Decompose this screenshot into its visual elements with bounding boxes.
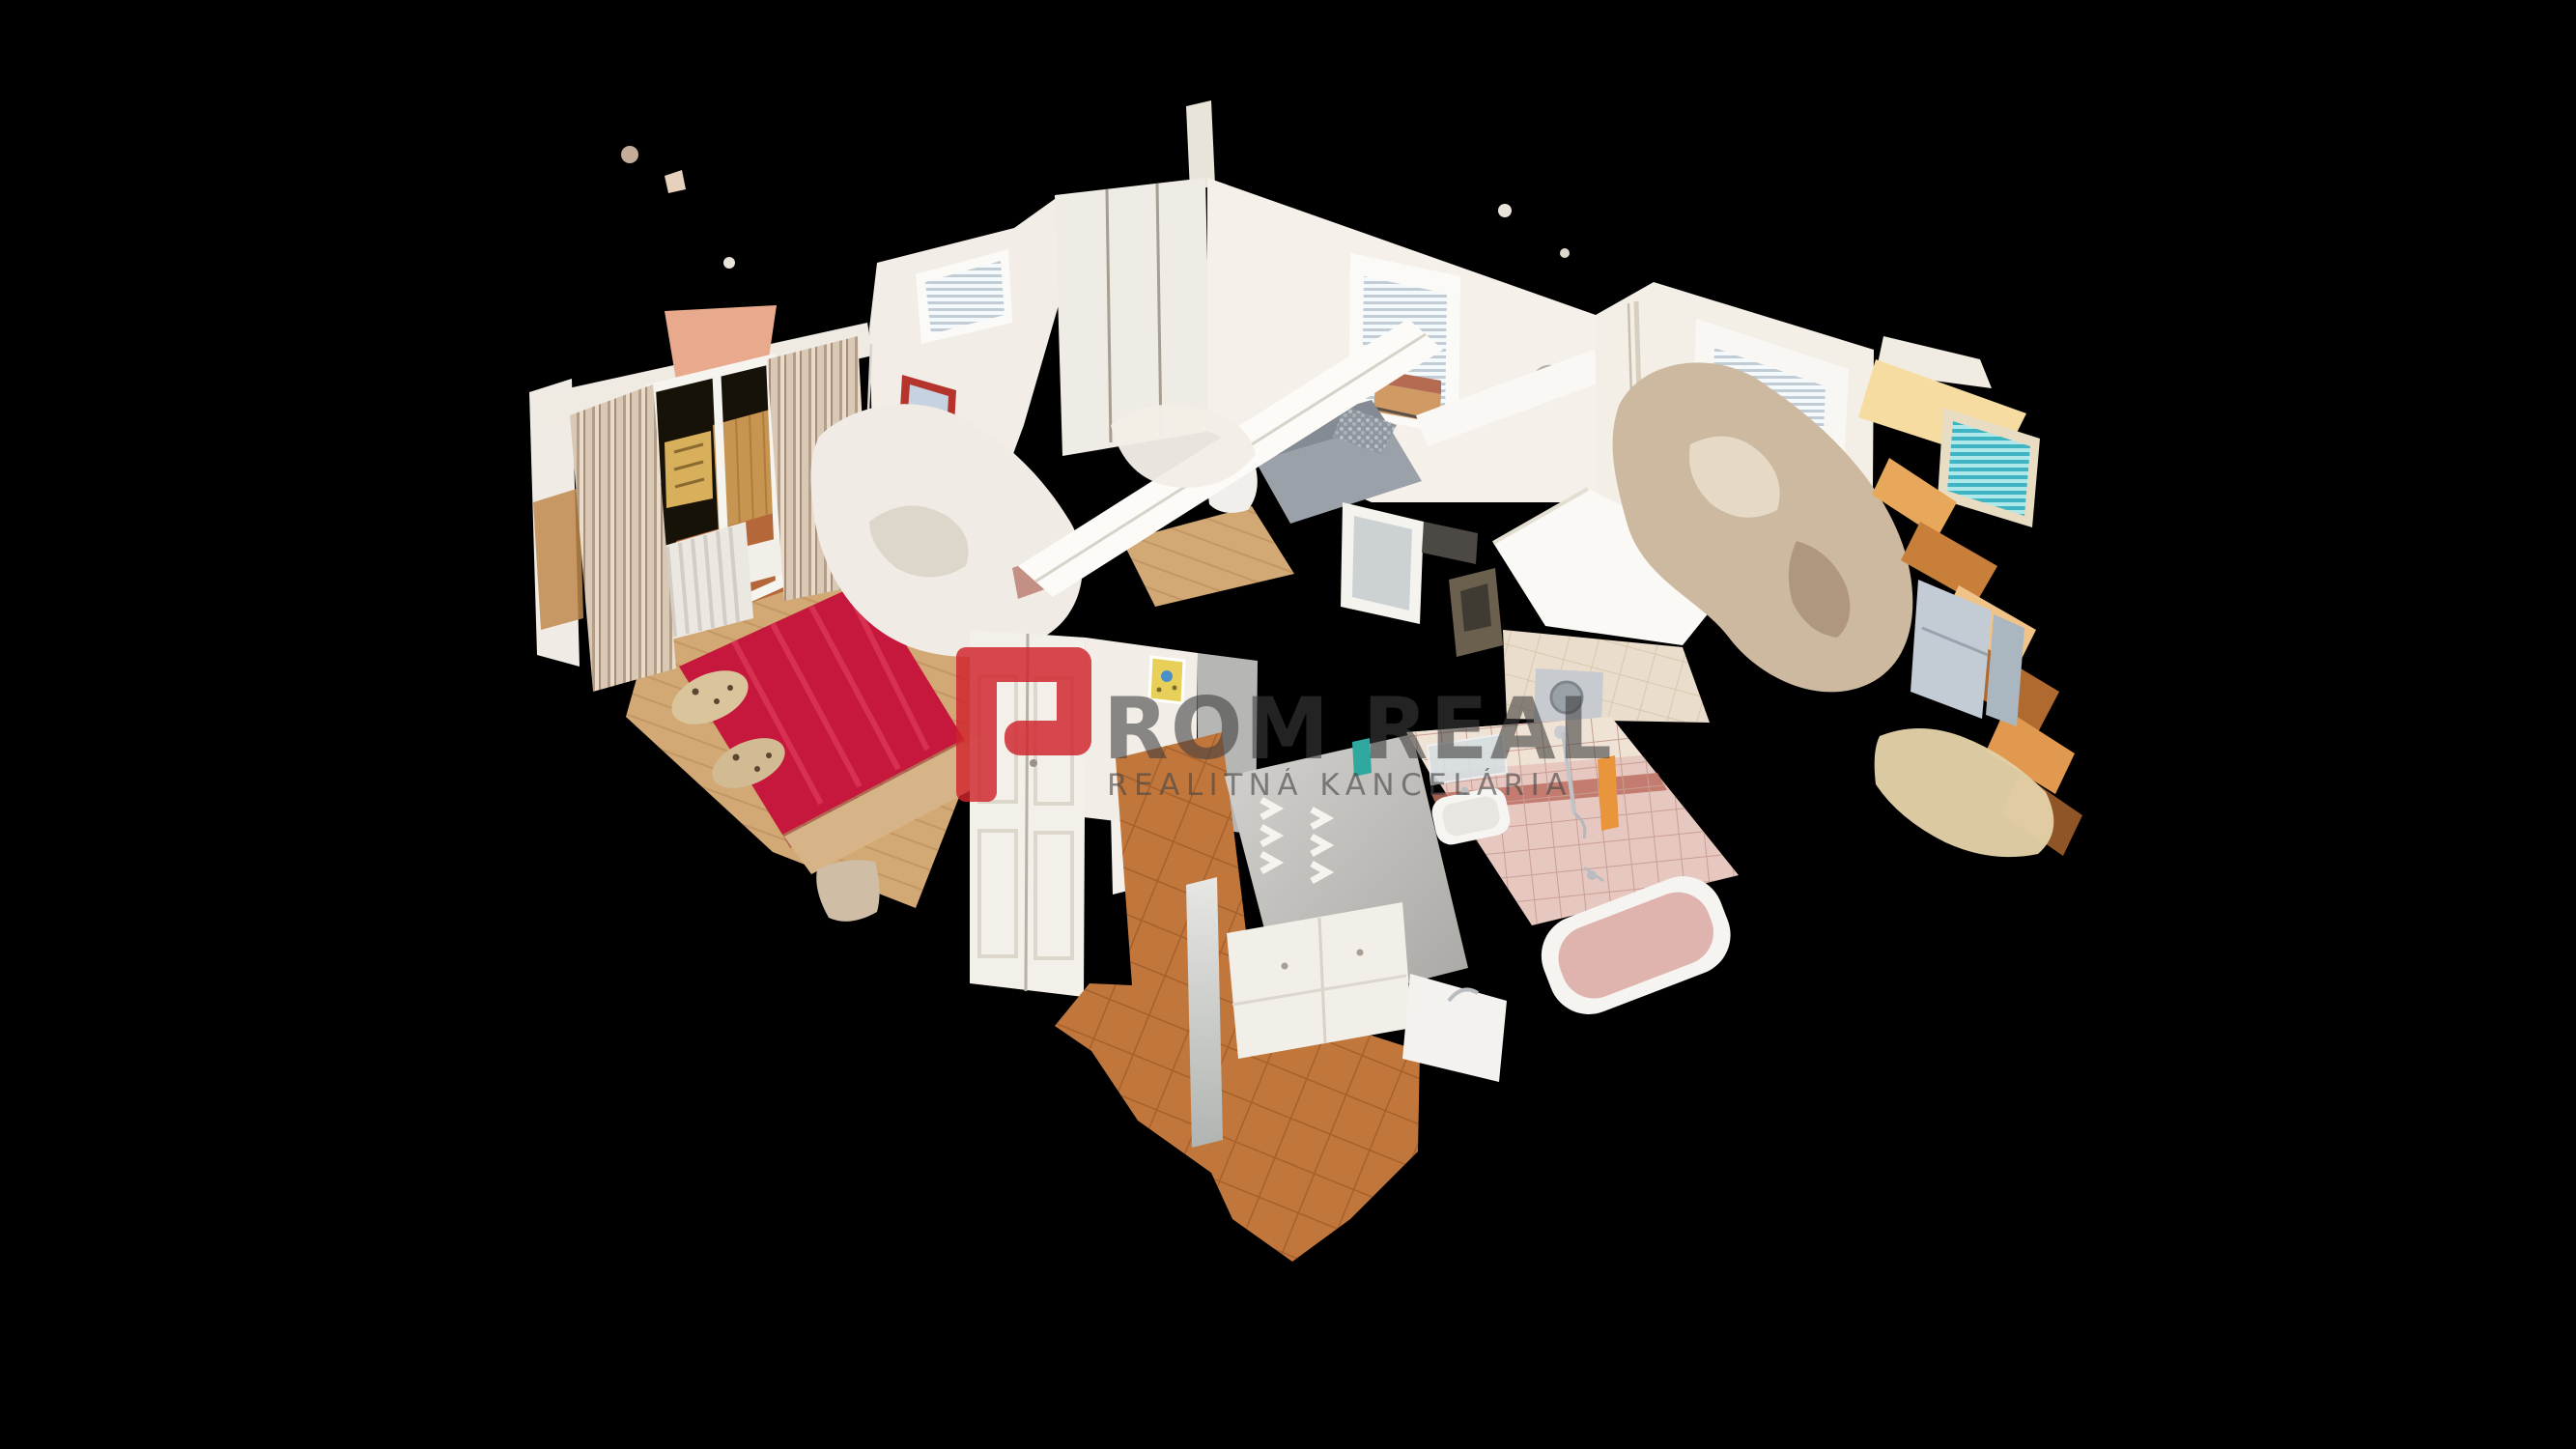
viewer-stage: P ROM REAL REALITNÁ KANCELÁRIA: [0, 0, 2576, 1449]
glass-door: [1341, 502, 1424, 624]
dollhouse-3d-view[interactable]: P ROM REAL REALITNÁ KANCELÁRIA: [0, 0, 2576, 1449]
dark-photo-fragment: [1449, 568, 1503, 657]
mirror-strip: [1186, 877, 1223, 1148]
hanging-cloth: [816, 860, 879, 922]
balcony-building: [665, 431, 713, 508]
brand-name: ROM REAL: [1103, 679, 1614, 779]
reed-blind-fragment: [533, 488, 583, 630]
wall-top-sliver: [1186, 100, 1215, 191]
brand-tagline: REALITNÁ KANCELÁRIA: [1107, 768, 1572, 803]
